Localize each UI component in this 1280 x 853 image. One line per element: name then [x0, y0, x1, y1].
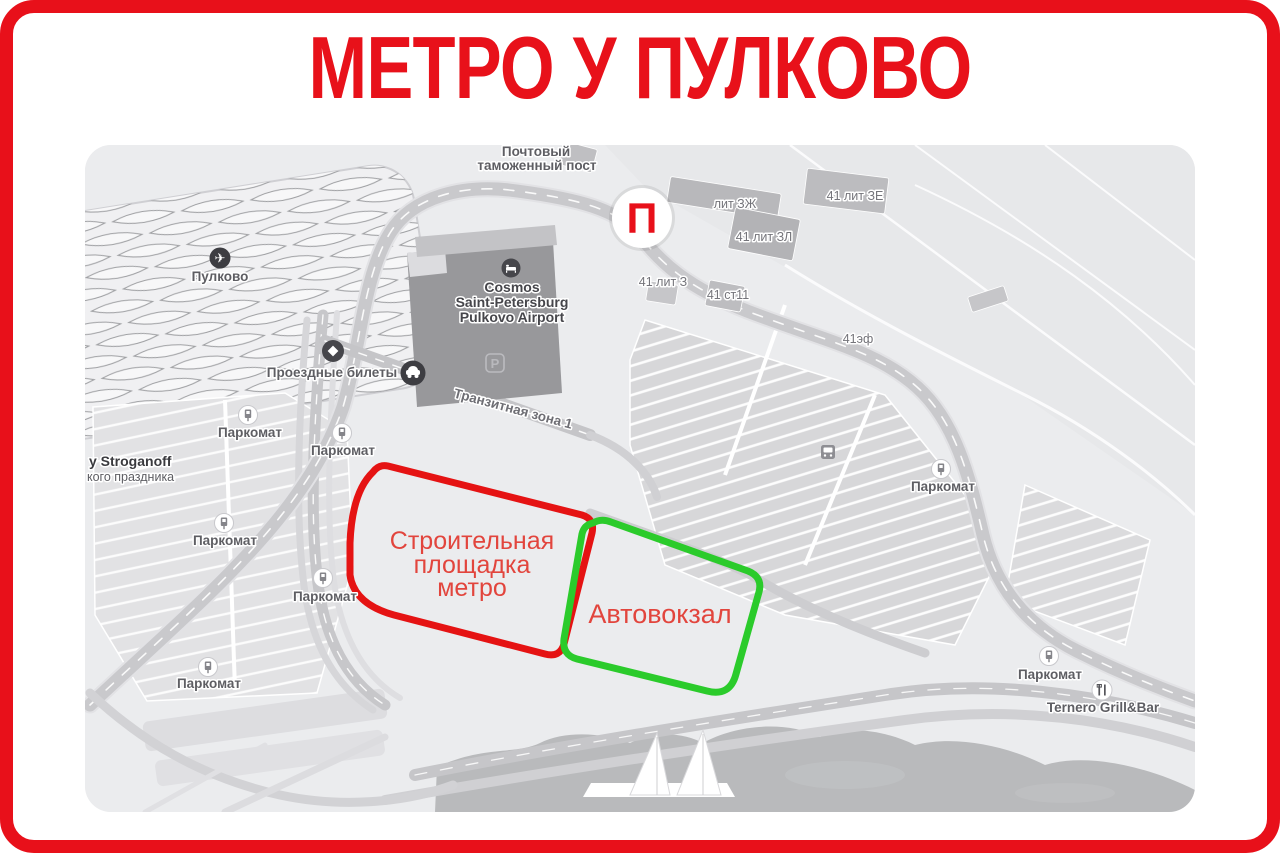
- parkomat-label: Паркомат: [218, 425, 282, 440]
- building-label-41-lit-ze: 41 лит ЗЕ: [827, 189, 884, 203]
- bus-station-label: Автовокзал: [588, 599, 731, 629]
- construction-label-line3: метро: [437, 574, 507, 602]
- building-label-lit-zzh: лит ЗЖ: [714, 197, 757, 211]
- building-label-41-lit-zl: 41 лит ЗЛ: [736, 230, 792, 244]
- svg-text:P: P: [491, 356, 500, 371]
- car-icon: [401, 361, 426, 386]
- metro-marker-letter: П: [627, 195, 658, 243]
- poster-title: МЕТРО У ПУЛКОВО: [128, 24, 1152, 112]
- tickets-icon: [322, 340, 344, 362]
- poster: МЕТРО У ПУЛКОВО: [0, 0, 1280, 853]
- hotel-icon: [502, 259, 521, 278]
- metro-marker: П: [609, 185, 675, 251]
- map-panel: Строительная площадка метро Автовокзал ✈: [85, 145, 1195, 812]
- parkomat-label: Паркомат: [193, 533, 257, 548]
- hotel-label-line2: Saint-Petersburg: [456, 294, 569, 310]
- parkomat-icon: [1040, 647, 1059, 666]
- parkomat-icon: [239, 406, 258, 425]
- parkomat-label: Паркомат: [311, 443, 375, 458]
- bus-icon: [821, 445, 835, 459]
- hotel-label-line1: Cosmos: [484, 279, 539, 295]
- stroganoff-label-line2: кого праздника: [87, 470, 174, 484]
- building-label-41-lit-z: 41 лит З: [639, 275, 687, 289]
- map-svg: Строительная площадка метро Автовокзал ✈: [85, 145, 1195, 812]
- parkomat-icon: [314, 569, 333, 588]
- tickets-label: Проездные билеты: [267, 365, 397, 380]
- parkomat-label: Паркомат: [1018, 667, 1082, 682]
- parkomat-icon: [932, 460, 951, 479]
- parkomat-icon: [199, 658, 218, 677]
- hotel-label-line3: Pulkovo Airport: [460, 309, 565, 325]
- parkomat-label: Паркомат: [911, 479, 975, 494]
- svg-text:✈: ✈: [215, 251, 226, 266]
- stroganoff-label-line1: y Stroganoff: [89, 453, 172, 469]
- building-label-41-ef: 41эф: [843, 332, 874, 346]
- customs-label-line1: Почтовый: [502, 145, 570, 159]
- airplane-icon: ✈: [210, 248, 231, 269]
- building-label-41-st11: 41 ст11: [707, 288, 749, 302]
- parkomat-icon: [333, 424, 352, 443]
- parkomat-icon: [215, 514, 234, 533]
- parkomat-label: Паркомат: [177, 676, 241, 691]
- airport-label: Пулково: [192, 269, 249, 284]
- restaurant-icon: [1092, 680, 1112, 700]
- customs-label-line2: таможенный пост: [477, 158, 597, 173]
- parkomat-label: Паркомат: [293, 589, 357, 604]
- restaurant-label: Ternero Grill&Bar: [1047, 700, 1160, 715]
